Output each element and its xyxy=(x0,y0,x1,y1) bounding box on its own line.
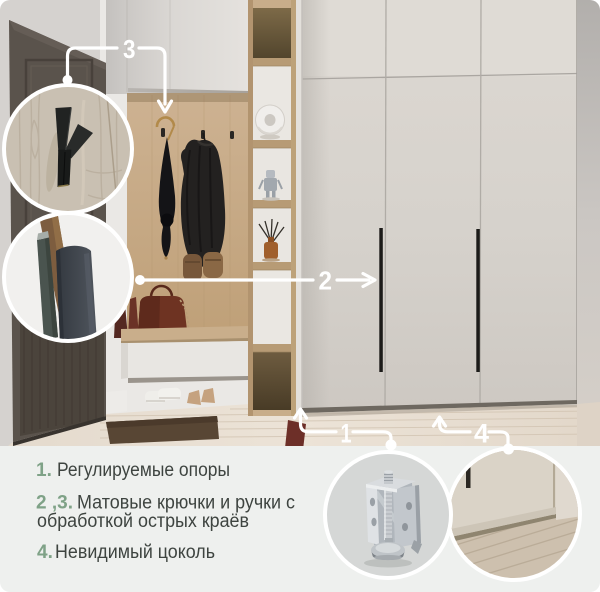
svg-text:1: 1 xyxy=(341,419,352,449)
svg-text:4.: 4. xyxy=(37,542,53,563)
svg-text:3: 3 xyxy=(123,34,136,64)
svg-text:1.: 1. xyxy=(36,460,52,481)
svg-text:обработкой острых краёв: обработкой острых краёв xyxy=(37,511,249,532)
svg-text:4: 4 xyxy=(474,419,489,449)
svg-text:Регулируемые опоры: Регулируемые опоры xyxy=(57,460,230,481)
svg-text:2: 2 xyxy=(319,266,333,296)
svg-text:Невидимый цоколь: Невидимый цоколь xyxy=(55,542,215,563)
